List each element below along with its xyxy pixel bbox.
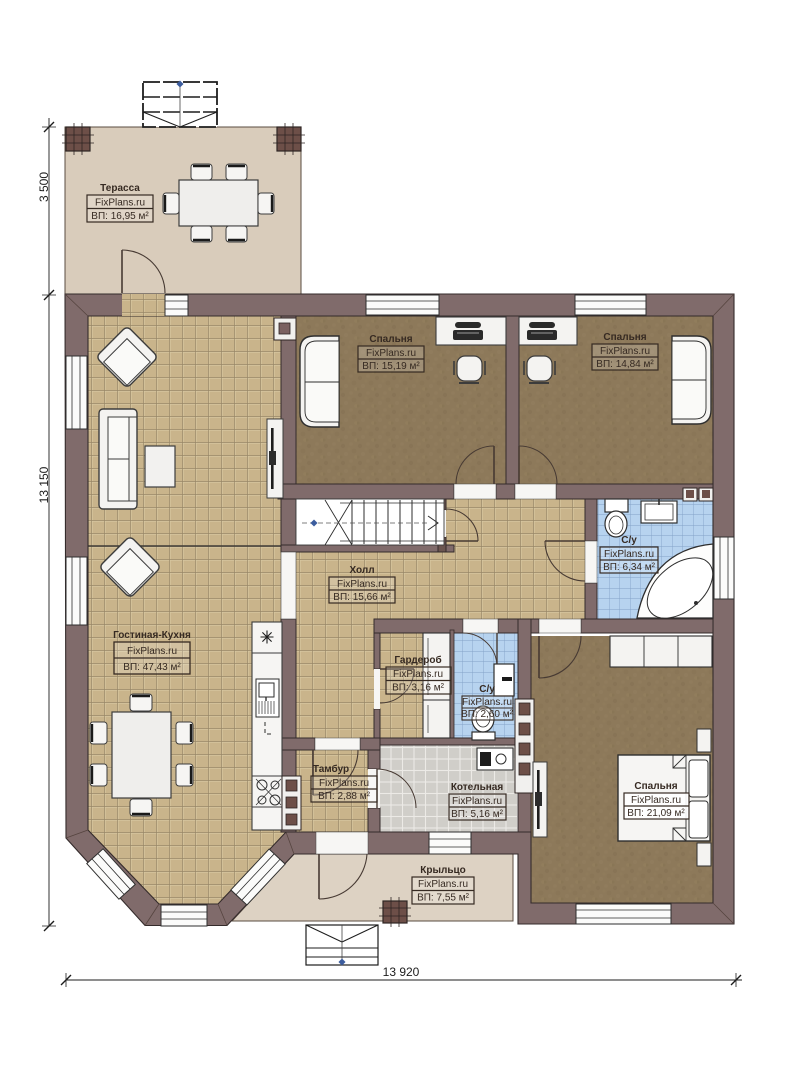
svg-text:FixPlans.ru: FixPlans.ru	[393, 669, 443, 680]
svg-text:ВП: 21,09 м²: ВП: 21,09 м²	[627, 808, 685, 819]
svg-text:ВП: 15,66 м²: ВП: 15,66 м²	[333, 592, 391, 603]
svg-text:FixPlans.ru: FixPlans.ru	[127, 646, 177, 657]
svg-text:Спальня: Спальня	[634, 781, 677, 792]
svg-text:FixPlans.ru: FixPlans.ru	[631, 795, 681, 806]
svg-text:FixPlans.ru: FixPlans.ru	[337, 579, 387, 590]
svg-text:FixPlans.ru: FixPlans.ru	[604, 549, 654, 560]
svg-text:FixPlans.ru: FixPlans.ru	[462, 697, 512, 708]
svg-text:С/у: С/у	[479, 684, 495, 695]
svg-text:Спальня: Спальня	[603, 332, 646, 343]
svg-text:FixPlans.ru: FixPlans.ru	[95, 198, 145, 209]
svg-text:ВП: 5,16 м²: ВП: 5,16 м²	[451, 809, 504, 820]
svg-text:ВП: 16,95 м²: ВП: 16,95 м²	[91, 211, 149, 222]
svg-text:Гостиная-Кухня: Гостиная-Кухня	[113, 630, 191, 641]
svg-text:Холл: Холл	[349, 565, 374, 576]
svg-text:FixPlans.ru: FixPlans.ru	[452, 796, 502, 807]
svg-text:13 920: 13 920	[383, 965, 420, 979]
svg-text:FixPlans.ru: FixPlans.ru	[366, 348, 416, 359]
svg-text:FixPlans.ru: FixPlans.ru	[319, 778, 369, 789]
svg-text:Котельная: Котельная	[451, 782, 504, 793]
svg-text:FixPlans.ru: FixPlans.ru	[600, 346, 650, 357]
svg-text:13 150: 13 150	[37, 466, 51, 503]
svg-text:ВП: 47,43 м²: ВП: 47,43 м²	[123, 662, 181, 673]
svg-text:С/у: С/у	[621, 535, 637, 546]
svg-text:Спальня: Спальня	[369, 334, 412, 345]
svg-text:ВП: 6,34 м²: ВП: 6,34 м²	[603, 562, 656, 573]
svg-text:Тамбур: Тамбур	[313, 763, 349, 775]
svg-text:ВП: 14,84 м²: ВП: 14,84 м²	[596, 359, 654, 370]
svg-text:ВП: 2,88 м²: ВП: 2,88 м²	[318, 791, 371, 802]
svg-text:Гардероб: Гардероб	[394, 654, 441, 666]
svg-text:3 500: 3 500	[37, 172, 51, 202]
svg-text:Терасса: Терасса	[100, 183, 140, 194]
svg-text:ВП: 3,16 м²: ВП: 3,16 м²	[392, 683, 445, 694]
svg-text:ВП: 15,19 м²: ВП: 15,19 м²	[362, 361, 420, 372]
svg-text:ВП: 7,55 м²: ВП: 7,55 м²	[417, 893, 470, 904]
svg-text:ВП: 2,60 м²: ВП: 2,60 м²	[461, 709, 514, 720]
svg-text:FixPlans.ru: FixPlans.ru	[418, 879, 468, 890]
svg-text:Крыльцо: Крыльцо	[420, 865, 466, 876]
